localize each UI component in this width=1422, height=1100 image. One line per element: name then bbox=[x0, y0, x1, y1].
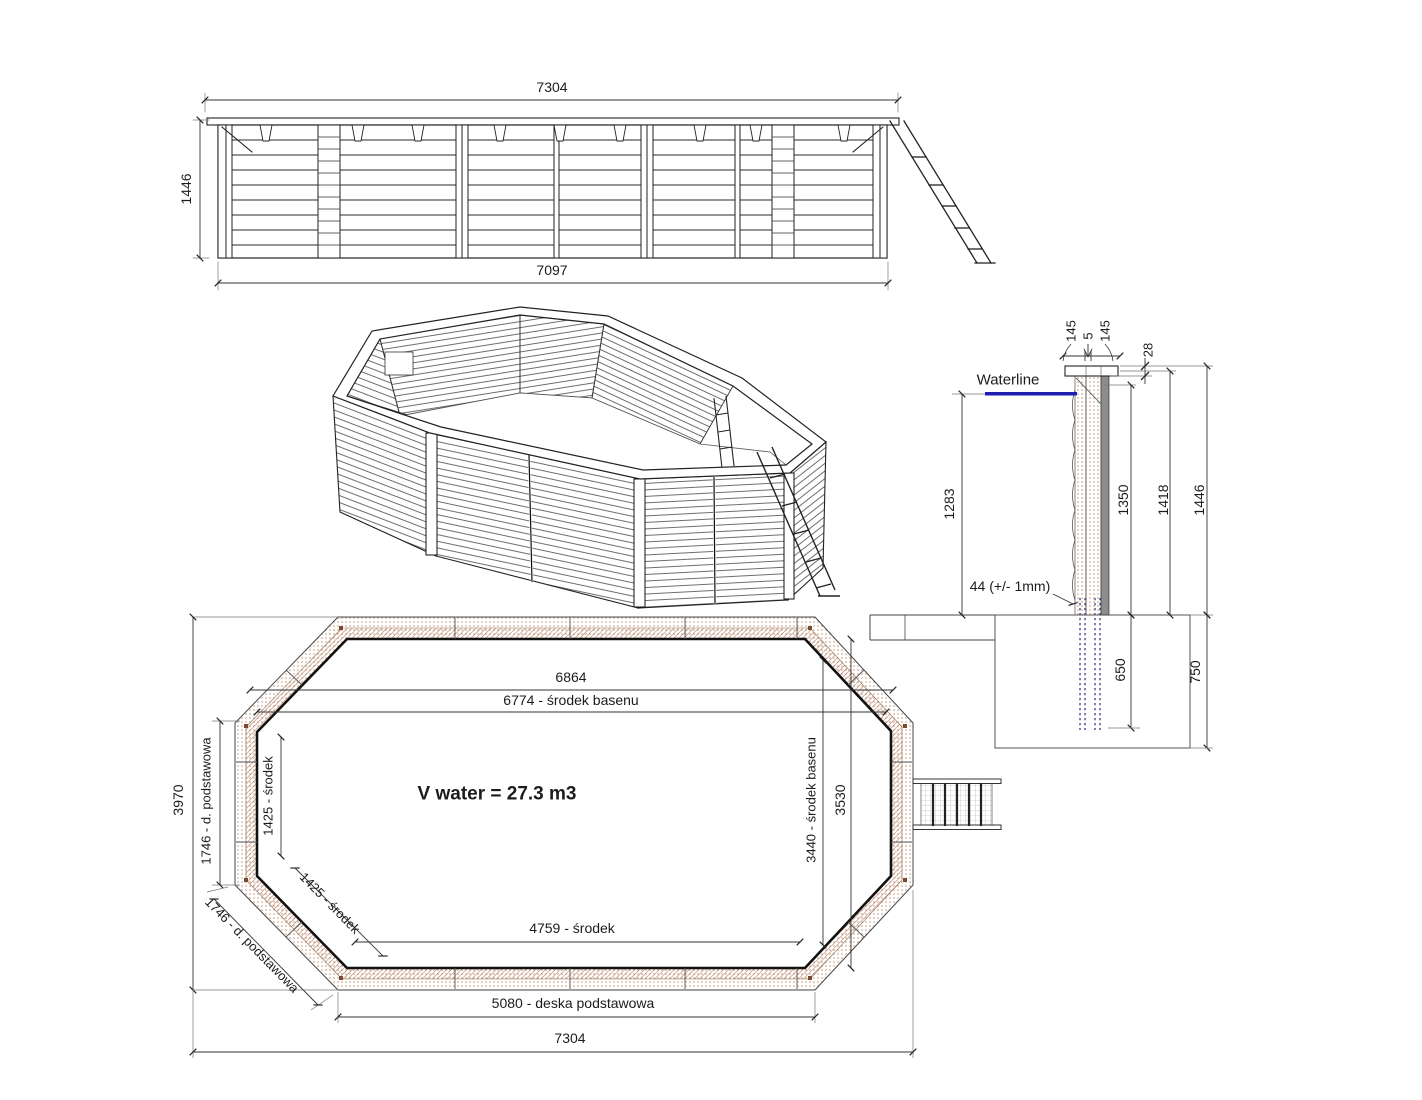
dim-plan-left-wall: 1746 - d. podstawowa bbox=[200, 737, 213, 864]
pool-technical-drawing: 7304 1446 7097 145 5 145 28 Waterline 12… bbox=[0, 0, 1422, 1100]
dim-cap-left: 145 bbox=[1065, 320, 1078, 342]
plan-view bbox=[193, 617, 1001, 1058]
dim-plan-center-width: 6774 - środek basenu bbox=[503, 693, 638, 707]
dim-side-bottom-width: 7097 bbox=[536, 263, 567, 277]
waterline-mark bbox=[985, 392, 1077, 396]
dim-plan-bottom-center: 4759 - środek bbox=[529, 921, 615, 935]
dim-plan-total-width: 7304 bbox=[554, 1031, 585, 1045]
waterline-label: Waterline bbox=[977, 373, 1040, 388]
wall-planks bbox=[1075, 376, 1086, 615]
dim-plan-left-wall-center: 1425 - środek bbox=[262, 756, 275, 836]
water-volume-label: V water = 27.3 m3 bbox=[418, 785, 577, 804]
isometric-view bbox=[333, 307, 840, 608]
dim-plan-center-height: 3440 - środek basenu bbox=[805, 737, 818, 863]
dim-waterline-height: 1283 bbox=[942, 488, 956, 519]
side-elevation-view bbox=[193, 93, 995, 290]
skimmer-opening bbox=[385, 352, 413, 375]
cross-section-view bbox=[870, 344, 1213, 748]
dim-plan-base-board: 5080 - deska podstawowa bbox=[492, 996, 655, 1010]
dim-plan-total-height: 3970 bbox=[171, 784, 185, 815]
dim-cap-gap: 5 bbox=[1082, 332, 1095, 339]
dim-foundation-depth: 750 bbox=[1188, 660, 1202, 683]
dim-wall-plank-height: 1350 bbox=[1116, 484, 1130, 515]
dim-wall-total-height: 1446 bbox=[1192, 484, 1206, 515]
dim-cap-right: 145 bbox=[1099, 320, 1112, 342]
dim-plan-inner-height: 3530 bbox=[833, 784, 847, 815]
ladder-side bbox=[890, 121, 995, 263]
dim-post-embed-depth: 650 bbox=[1113, 658, 1127, 681]
dim-wall-mid-height: 1418 bbox=[1156, 484, 1170, 515]
ladder-plan bbox=[913, 779, 1001, 830]
dim-side-height: 1446 bbox=[179, 173, 193, 204]
top-rail-cap bbox=[1065, 366, 1118, 376]
dim-plan-inner-width: 6864 bbox=[555, 670, 586, 684]
plank-thickness-note: 44 (+/- 1mm) bbox=[970, 579, 1051, 593]
dim-cap-thickness: 28 bbox=[1142, 343, 1155, 357]
drawing-linework bbox=[0, 0, 1422, 1100]
dim-side-top-width: 7304 bbox=[536, 80, 567, 94]
foundation-block bbox=[995, 615, 1190, 748]
